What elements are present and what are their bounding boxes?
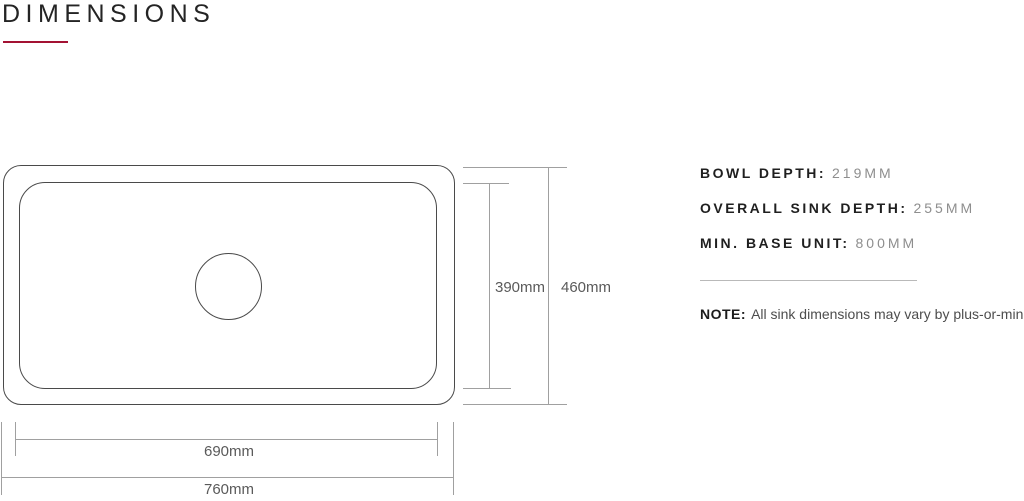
cap-760-right [453,422,454,495]
spec-label-bowl-depth: BOWL DEPTH: [700,165,826,181]
cap-760-left [1,422,2,495]
drain-hole-icon [195,253,262,320]
spec-value-min-base-unit: 800MM [856,235,918,251]
spec-value-overall-sink-depth: 255MM [913,200,975,216]
extension-line-inner-top [463,183,509,184]
page-title: DIMENSIONS [2,0,215,29]
note-label: NOTE: [700,306,746,322]
dim-label-outer-width: 760mm [179,482,279,498]
note: NOTE:All sink dimensions may vary by plu… [700,305,1024,323]
dimension-line-760 [1,477,454,478]
dim-label-inner-height: 390mm [495,280,545,296]
dimension-line-460 [548,167,549,405]
extension-line-outer-top [463,167,567,168]
dimension-line-390 [489,183,490,389]
note-text: All sink dimensions may vary by plus-or-… [751,306,1024,322]
extension-line-inner-bottom [463,388,511,389]
title-underline-accent [3,41,68,43]
spec-divider [700,280,917,281]
dimensions-page: DIMENSIONS 390mm 460mm 690mm 760mm BOWL … [0,0,1024,501]
spec-row-overall-sink-depth: OVERALL SINK DEPTH:255MM [700,200,975,217]
spec-row-min-base-unit: MIN. BASE UNIT:800MM [700,235,917,252]
dim-label-outer-height: 460mm [561,280,611,296]
spec-label-min-base-unit: MIN. BASE UNIT: [700,235,850,251]
extension-line-outer-bottom [463,404,567,405]
spec-value-bowl-depth: 219MM [832,165,894,181]
dim-label-inner-width: 690mm [179,444,279,460]
dimension-line-690 [15,439,438,440]
spec-label-overall-sink-depth: OVERALL SINK DEPTH: [700,200,907,216]
spec-row-bowl-depth: BOWL DEPTH:219MM [700,165,894,182]
